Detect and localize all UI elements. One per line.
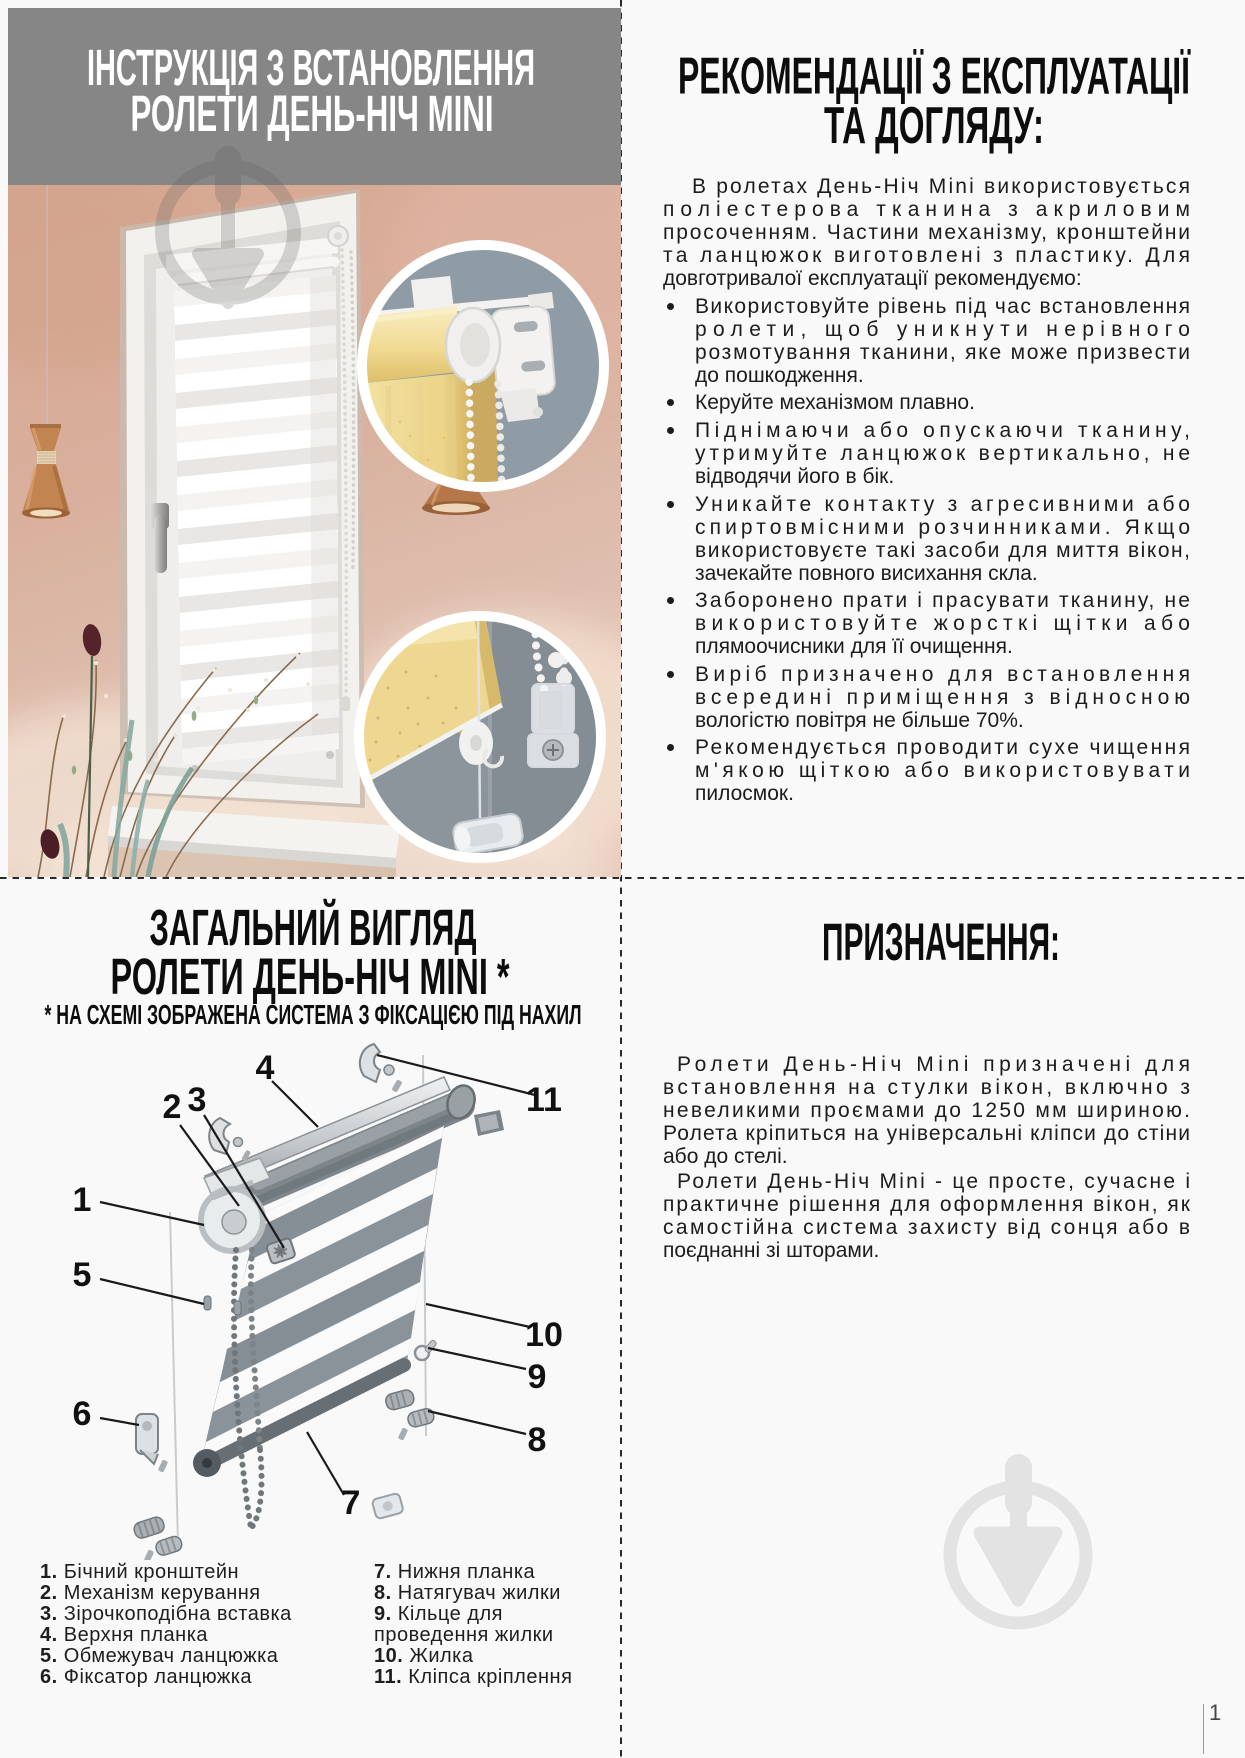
svg-text:* НА СХЕМІ ЗОБРАЖЕНА СИСТЕМА З: * НА СХЕМІ ЗОБРАЖЕНА СИСТЕМА З ФІКСАЦІЄЮ… <box>45 999 582 1030</box>
svg-text:5: 5 <box>73 1256 92 1294</box>
svg-text:10: 10 <box>525 1316 563 1354</box>
svg-text:9: 9 <box>528 1358 547 1396</box>
svg-text:РОЛЕТИ ДЕНЬ-НІЧ MINI: РОЛЕТИ ДЕНЬ-НІЧ MINI <box>131 85 494 142</box>
svg-text:2: 2 <box>163 1088 182 1126</box>
svg-text:11: 11 <box>526 1081 562 1119</box>
svg-text:ПРИЗНАЧЕННЯ:: ПРИЗНАЧЕННЯ: <box>822 913 1060 972</box>
svg-text:7: 7 <box>342 1484 361 1522</box>
svg-text:4: 4 <box>256 1049 275 1087</box>
svg-text:6: 6 <box>73 1395 92 1433</box>
svg-text:РОЛЕТИ ДЕНЬ-НІЧ MINI *: РОЛЕТИ ДЕНЬ-НІЧ MINI * <box>111 948 510 1005</box>
svg-text:ТА ДОГЛЯДУ:: ТА ДОГЛЯДУ: <box>824 96 1044 154</box>
svg-text:8: 8 <box>528 1421 547 1459</box>
svg-text:1: 1 <box>73 1181 92 1219</box>
svg-text:3: 3 <box>188 1081 207 1119</box>
